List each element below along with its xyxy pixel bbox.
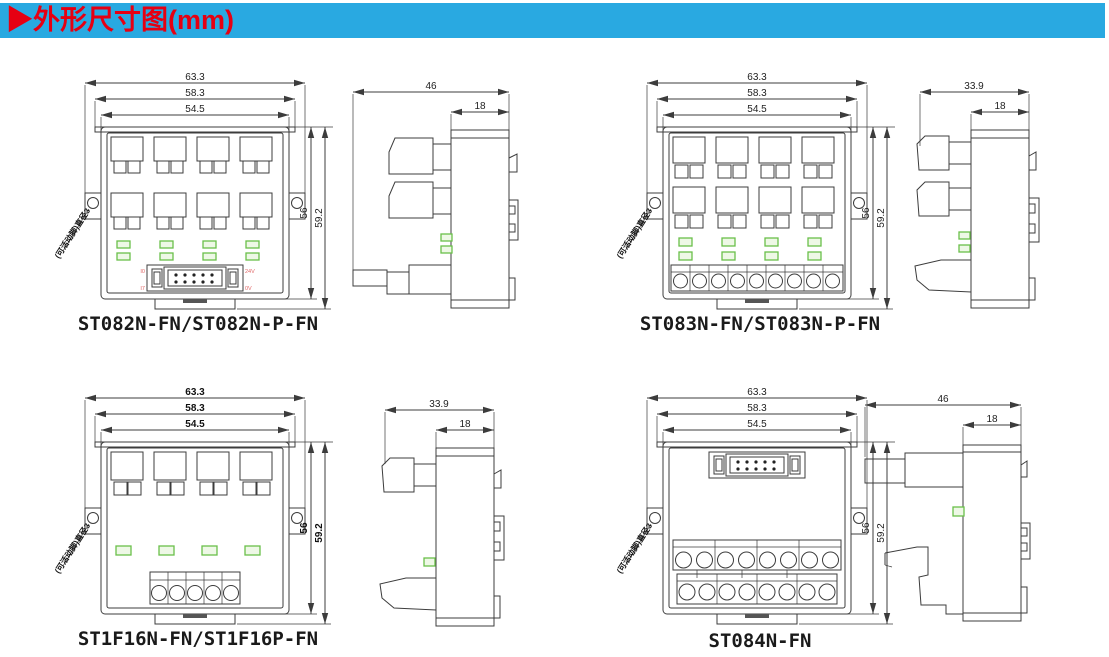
side-view-st082n: 46 18 (345, 82, 525, 317)
svg-text:58.3: 58.3 (747, 88, 767, 99)
movable-foot-note: (可活动脚)直径3 (52, 206, 92, 260)
terminal-covers (389, 138, 451, 218)
terminal-covers (382, 458, 436, 492)
model-label: ST082N-FN/ST082N-P-FN (55, 313, 341, 335)
svg-text:56: 56 (861, 207, 872, 219)
svg-text:54.5: 54.5 (185, 419, 205, 430)
idc-connector (147, 265, 243, 291)
led-indicators (116, 546, 260, 555)
svg-text:(可活动脚)直径3: (可活动脚)直径3 (614, 521, 654, 575)
bottom-latch (380, 578, 436, 610)
svg-text:56: 56 (299, 522, 310, 534)
bottom-latch (915, 260, 971, 292)
side-view-st084n: 46 18 (857, 395, 1037, 630)
side-body (971, 130, 1039, 308)
svg-text:46: 46 (937, 394, 949, 405)
svg-text:(可活动脚)直径3: (可活动脚)直径3 (52, 206, 92, 260)
height-dimensions: 56 59.2 (237, 442, 333, 624)
led-indicators (953, 507, 964, 516)
screw-terminals (150, 572, 240, 604)
movable-foot-note: (可活动脚)直径3 (52, 521, 92, 575)
svg-text:18: 18 (474, 101, 486, 112)
dim-63: 63.3 (185, 72, 205, 83)
drawing-st083n: 63.3 58.3 54.5 (555, 60, 1109, 342)
height-dimensions: 56 59.2 (799, 127, 895, 309)
svg-text:59.2: 59.2 (314, 523, 325, 543)
dimension-sheet: ▶外形尺寸图(mm) 63.3 58.3 54.5 (0, 0, 1109, 657)
bottom-latch (885, 547, 963, 614)
terminal-blocks (673, 137, 834, 228)
section-header: ▶外形尺寸图(mm) (0, 3, 1105, 38)
side-dimensions: 33.9 18 (385, 399, 494, 464)
svg-text:54.5: 54.5 (747, 419, 767, 430)
model-label: ST1F16N-FN/ST1F16P-FN (55, 628, 341, 650)
svg-text:58.3: 58.3 (185, 403, 205, 414)
model-label: ST084N-FN (617, 630, 903, 652)
screw-terminals-row1 (673, 540, 841, 570)
led-indicators (959, 232, 970, 252)
led-indicators (441, 234, 452, 253)
screw-terminals-row2 (677, 570, 837, 604)
svg-text:63.3: 63.3 (747, 387, 767, 398)
side-body (436, 448, 504, 626)
movable-foot-note: (可活动脚)直径3 (614, 521, 654, 575)
svg-text:I7: I7 (140, 286, 145, 292)
side-body (963, 445, 1030, 621)
side-dimensions: 46 18 (865, 394, 1021, 457)
dim-56: 56 (299, 207, 310, 219)
side-view-st1f16: 33.9 18 (350, 400, 510, 635)
svg-text:18: 18 (459, 419, 471, 430)
svg-text:58.3: 58.3 (747, 403, 767, 414)
side-body (451, 130, 518, 308)
dim-59: 59.2 (314, 208, 325, 228)
terminal-covers (917, 136, 971, 216)
front-view-st082n: 63.3 58.3 54.5 (55, 75, 341, 315)
led-indicators (424, 558, 435, 566)
dim-54: 54.5 (185, 104, 205, 115)
svg-text:0V: 0V (245, 286, 252, 292)
drawing-st082n: 63.3 58.3 54.5 (0, 60, 555, 342)
svg-text:33.9: 33.9 (964, 81, 984, 92)
front-view-st083n: 63.3 58.3 54.5 (617, 75, 903, 315)
svg-text:18: 18 (986, 414, 998, 425)
height-dimensions: 56 59.2 (237, 127, 333, 309)
svg-text:I0: I0 (140, 269, 145, 275)
svg-text:24V: 24V (245, 269, 255, 275)
svg-text:63.3: 63.3 (747, 72, 767, 83)
led-indicators (679, 238, 821, 260)
front-view-st1f16: 63.3 58.3 54.5 (55, 390, 341, 630)
led-indicators (117, 241, 259, 260)
svg-text:63.3: 63.3 (185, 387, 205, 398)
dim-58: 58.3 (185, 88, 205, 99)
bottom-latch (353, 265, 451, 294)
screw-terminals (671, 265, 843, 291)
svg-text:54.5: 54.5 (747, 104, 767, 115)
svg-text:(可活动脚)直径3: (可活动脚)直径3 (614, 206, 654, 260)
idc-connector (709, 452, 805, 478)
side-view-st083n: 33.9 18 (885, 82, 1045, 317)
drawing-st1f16: 63.3 58.3 54.5 (0, 375, 555, 657)
svg-text:(可活动脚)直径3: (可活动脚)直径3 (52, 521, 92, 575)
svg-text:18: 18 (994, 101, 1006, 112)
model-label: ST083N-FN/ST083N-P-FN (617, 313, 903, 335)
svg-text:33.9: 33.9 (429, 399, 449, 410)
terminal-blocks (111, 452, 272, 495)
drawing-st084n: 63.3 58.3 54.5 (555, 375, 1109, 657)
terminal-blocks (111, 137, 272, 229)
cable-connector (865, 453, 963, 487)
side-dimensions: 46 18 (353, 81, 509, 278)
movable-foot-note: (可活动脚)直径3 (614, 206, 654, 260)
section-title: ▶外形尺寸图(mm) (0, 7, 234, 34)
svg-text:46: 46 (425, 81, 437, 92)
